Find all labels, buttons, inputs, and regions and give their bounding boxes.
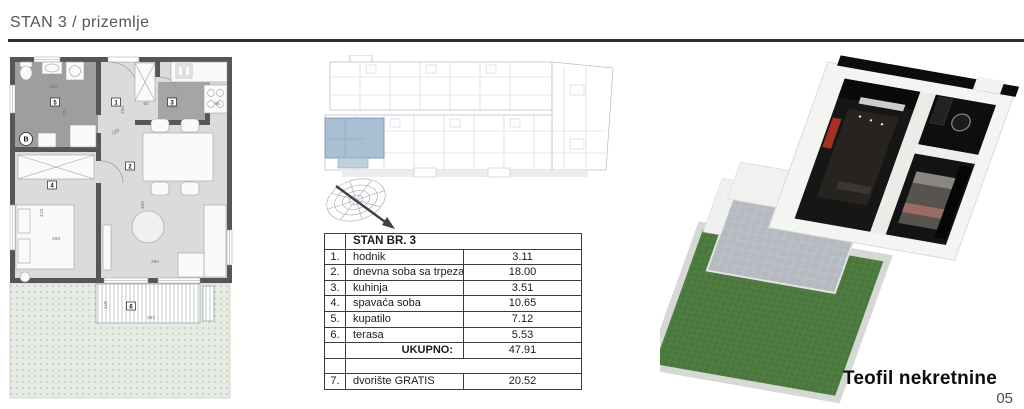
building-entrance [414,168,436,177]
compass [320,174,404,240]
total-value: 47.91 [464,343,582,359]
kitchen-floor [158,82,210,122]
svg-text:275: 275 [62,109,68,117]
entry-label: B [23,137,28,144]
table-title: STAN BR. 3 [346,234,582,250]
table-row: 1. hodnik 3.11 [325,249,582,265]
building-entrance-2 [488,168,510,177]
svg-text:410: 410 [39,209,45,217]
svg-text:60: 60 [143,101,149,107]
table-total-row: UKUPNO: 47.91 [325,343,582,359]
table-header-row: STAN BR. 3 [325,234,582,250]
svg-text:118: 118 [103,301,109,309]
table-row: 3. kuhinja 3.51 [325,280,582,296]
title-rule [8,39,1024,42]
apartment-3d-render [660,43,1024,409]
brand-name: Teofil nekretnine [843,368,997,390]
svg-text:360: 360 [151,259,159,265]
table-bonus-row: 7. dvorište GRATIS 20.52 [325,374,582,390]
total-label: UKUPNO: [346,343,464,359]
page-title: STAN 3 / prizemlje [10,14,149,32]
page-number: 05 [996,390,1013,407]
svg-text:204: 204 [120,106,126,114]
floorplan-2d: 1 2 3 4 5 6 B 260 275 204 120 60 105 66 … [8,55,234,400]
svg-text:66: 66 [214,101,220,107]
svg-text:392: 392 [147,315,155,321]
table-spacer-row [325,358,582,374]
table-row: 5. kupatilo 7.12 [325,311,582,327]
table-row: 6. terasa 5.53 [325,327,582,343]
area-table: STAN BR. 3 1. hodnik 3.11 2. dnevna soba… [324,233,582,390]
svg-text:105: 105 [170,104,178,110]
svg-text:260: 260 [52,236,60,242]
svg-text:260: 260 [49,84,57,90]
table-row: 2. dnevna soba sa trpezarijom 18.00 [325,265,582,281]
building-plan [318,55,618,179]
svg-text:300: 300 [140,201,146,209]
table-row: 4. spavaća soba 10.65 [325,296,582,312]
